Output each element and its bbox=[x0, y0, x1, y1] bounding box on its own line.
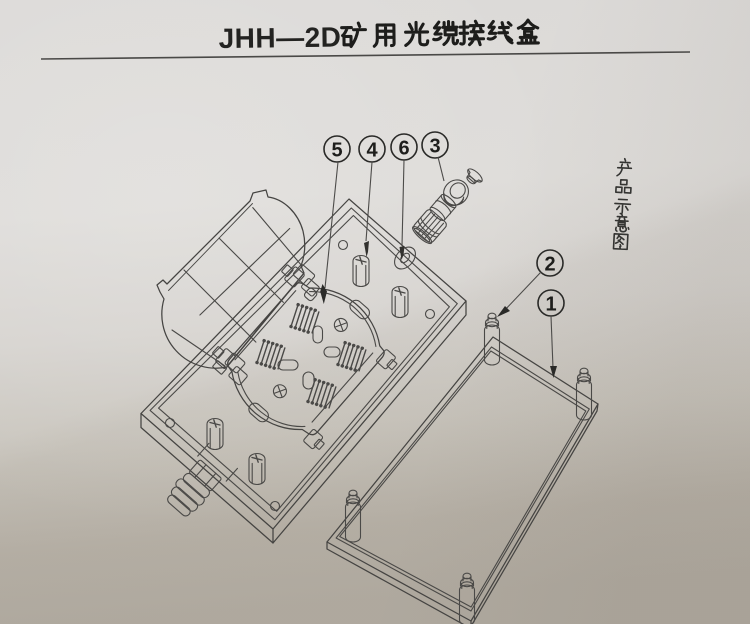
svg-text:5: 5 bbox=[331, 140, 342, 162]
svg-text:2: 2 bbox=[544, 254, 555, 276]
svg-text:JHH—2D: JHH—2D bbox=[218, 22, 341, 54]
svg-text:4: 4 bbox=[366, 140, 378, 162]
svg-text:6: 6 bbox=[398, 138, 409, 160]
svg-text:1: 1 bbox=[545, 294, 556, 316]
svg-text:3: 3 bbox=[429, 136, 440, 158]
